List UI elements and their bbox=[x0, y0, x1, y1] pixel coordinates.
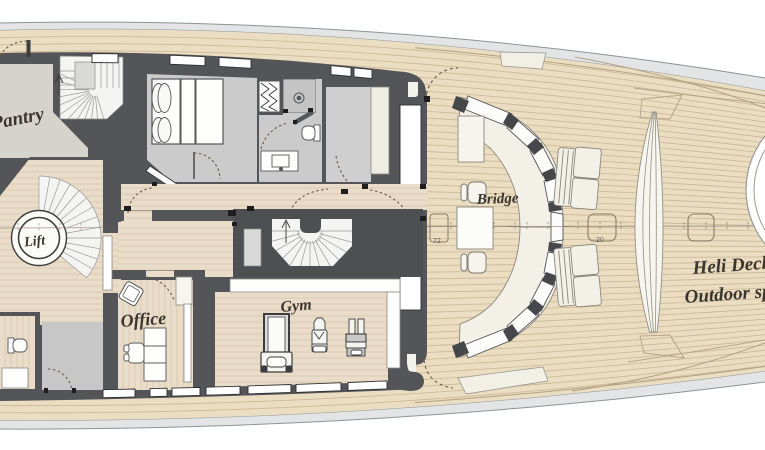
svg-text:Bridge: Bridge bbox=[476, 191, 520, 208]
svg-text:72: 72 bbox=[433, 238, 441, 245]
svg-text:Lift: Lift bbox=[22, 233, 47, 250]
svg-text:20: 20 bbox=[596, 237, 604, 244]
svg-text:Office: Office bbox=[120, 308, 167, 331]
